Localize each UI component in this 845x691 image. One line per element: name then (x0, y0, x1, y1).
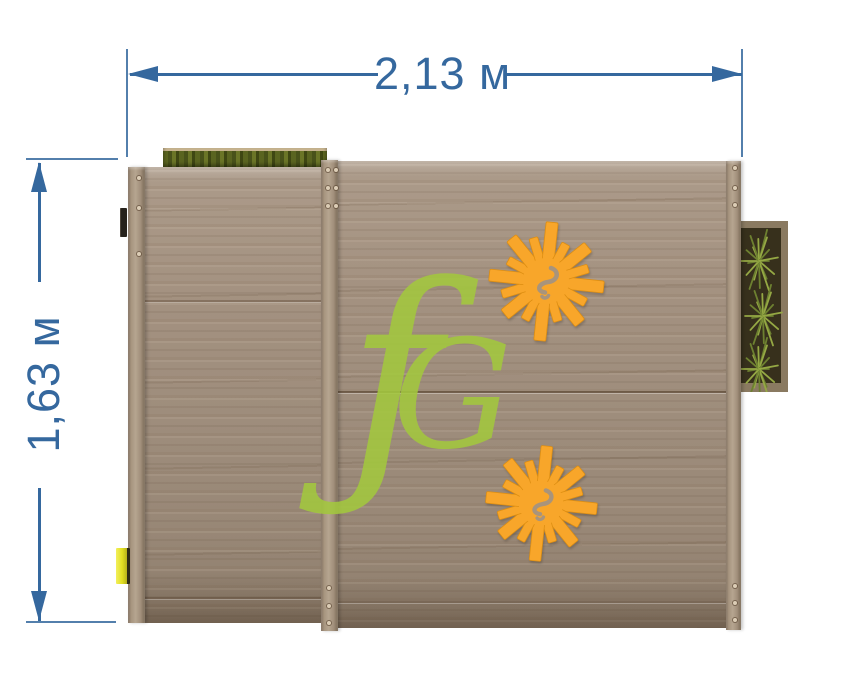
left-edge-board (128, 167, 145, 623)
height-dimension-label: 1,63 м (20, 294, 68, 474)
screw (733, 203, 737, 207)
brand-watermark-icon: ƒG (346, 252, 512, 507)
screw (137, 252, 141, 256)
screw (733, 601, 737, 605)
watermark-glyph-g: G (392, 309, 512, 483)
width-dimension-label: 2,13 м (374, 50, 506, 98)
screw (137, 176, 141, 180)
width-dimension-line-right (504, 73, 742, 76)
arrow-up-icon (31, 162, 47, 192)
grass-planter-top (163, 148, 327, 168)
screw (327, 621, 331, 625)
screw (733, 186, 737, 190)
plant-box-right (741, 221, 788, 392)
screw (334, 186, 338, 190)
screw (327, 586, 331, 590)
hinge (120, 208, 127, 237)
screw (326, 204, 330, 208)
screw (326, 168, 330, 172)
plank-seam (128, 597, 335, 599)
yellow-latch (116, 548, 130, 584)
divider-board (321, 160, 338, 631)
screw (327, 604, 331, 608)
screw (326, 186, 330, 190)
screw (733, 166, 737, 170)
product-diagram: 2,13 м 1,63 м (0, 0, 845, 691)
screw (334, 168, 338, 172)
screw (137, 206, 141, 210)
arrow-down-icon (31, 591, 47, 621)
arrow-left-icon (128, 66, 158, 82)
height-extension-line-bottom (26, 621, 116, 623)
left-door-panel (128, 167, 335, 623)
right-edge-board (726, 161, 741, 630)
plank-seam (128, 300, 335, 302)
screw (733, 618, 737, 622)
screw (733, 584, 737, 588)
plank-seam (335, 601, 741, 603)
screw (334, 204, 338, 208)
arrow-right-icon (712, 66, 742, 82)
height-extension-line-top (26, 158, 118, 160)
width-dimension-line-left (130, 73, 378, 76)
